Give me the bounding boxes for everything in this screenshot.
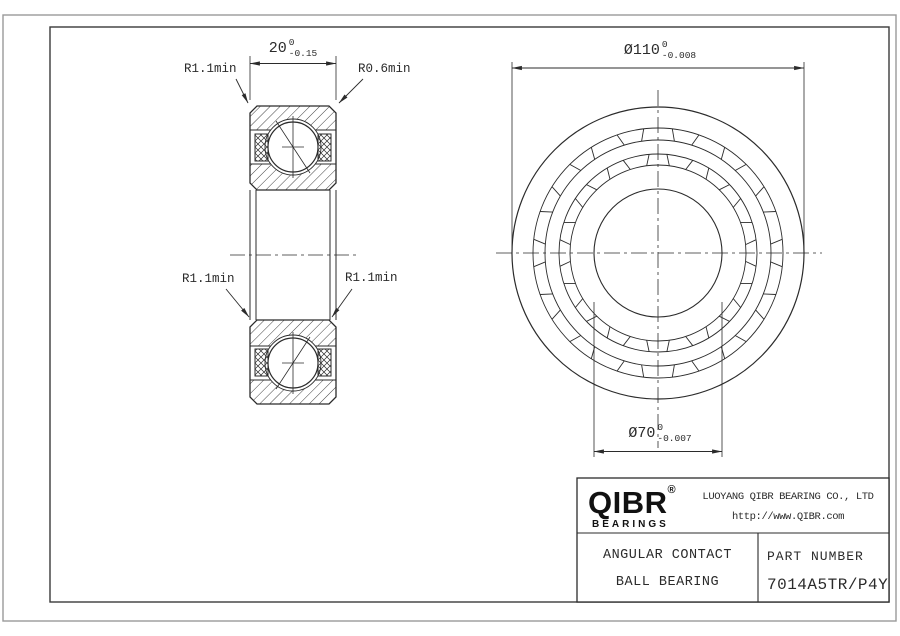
front-view-centerlines <box>496 90 822 448</box>
dim-od-tolerance: 0 -0.008 <box>662 40 696 62</box>
part-number-value: 7014A5TR/P4Y <box>767 576 888 594</box>
company-logo: QIBR® BEARINGS <box>588 487 676 530</box>
dim-od-text: Ø110 0 -0.008 <box>624 42 696 62</box>
logo-subtitle: BEARINGS <box>592 520 676 530</box>
dim-width-tolerance: 0 -0.15 <box>289 38 318 60</box>
bearing-cross-section-view <box>226 56 363 404</box>
label-r-top-right: R0.6min <box>358 62 411 76</box>
registered-trademark-icon: ® <box>668 484 676 496</box>
dimension-width-20 <box>250 56 336 100</box>
product-name-line1: ANGULAR CONTACT <box>577 548 758 563</box>
company-website: http://www.QIBR.com <box>693 511 883 523</box>
part-number-label: PART NUMBER <box>767 549 864 564</box>
company-name: LUOYANG QIBR BEARING CO., LTD <box>693 491 883 503</box>
drawing-canvas <box>0 0 900 636</box>
product-name-line2: BALL BEARING <box>577 575 758 590</box>
logo-wordmark: QIBR <box>588 485 668 520</box>
dim-bore-tolerance: 0 -0.007 <box>657 423 691 445</box>
label-r-mid-right: R1.1min <box>345 271 398 285</box>
drawing-sheet: 20 0 -0.15 R1.1min R0.6min R1.1min R1.1m… <box>0 0 900 636</box>
dim-width-text: 20 0 -0.15 <box>269 40 318 60</box>
label-r-mid-left: R1.1min <box>182 272 235 286</box>
label-r-top-left: R1.1min <box>184 62 237 76</box>
section-bottom-half <box>250 320 336 404</box>
section-top-half <box>250 106 336 190</box>
dim-bore-text: Ø70 0 -0.007 <box>628 425 691 445</box>
bearing-front-view <box>496 62 822 457</box>
